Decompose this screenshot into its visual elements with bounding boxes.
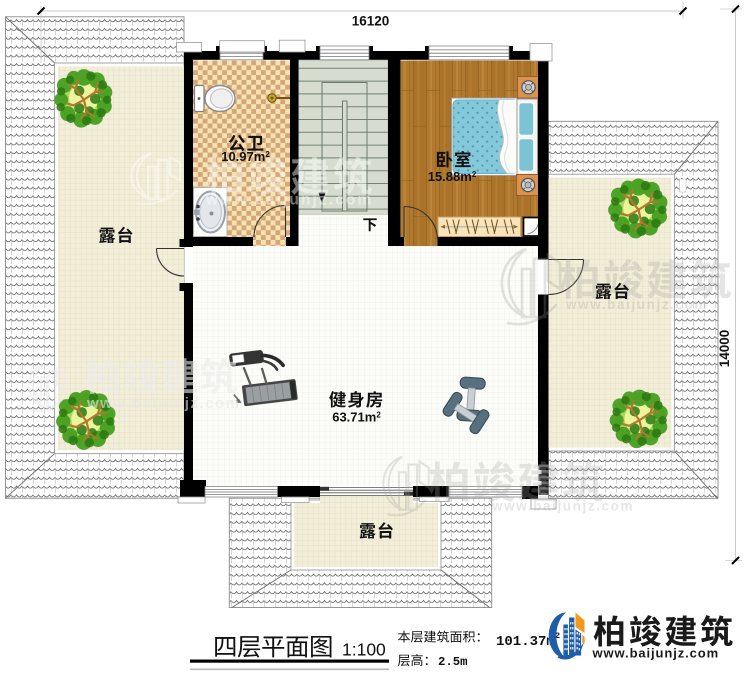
svg-text:10.97m2: 10.97m2 (221, 149, 270, 164)
svg-text:www.baijunjz.com: www.baijunjz.com (565, 297, 708, 312)
svg-text:www.baijunjz.com: www.baijunjz.com (205, 192, 373, 209)
svg-text:www.baijunjz.com: www.baijunjz.com (592, 646, 720, 661)
svg-text:2.5m: 2.5m (438, 655, 468, 669)
svg-text:1:100: 1:100 (342, 640, 386, 660)
svg-text:16120: 16120 (352, 14, 390, 29)
svg-text:14000: 14000 (717, 330, 732, 368)
svg-text:15.88m2: 15.88m2 (428, 169, 477, 184)
svg-text:63.71m2: 63.71m2 (332, 410, 381, 425)
svg-text:www.baijunjz.com: www.baijunjz.com (491, 499, 634, 514)
svg-text:101.37m: 101.37m (496, 634, 555, 650)
svg-text:www.baijunjz.com: www.baijunjz.com (86, 395, 240, 412)
